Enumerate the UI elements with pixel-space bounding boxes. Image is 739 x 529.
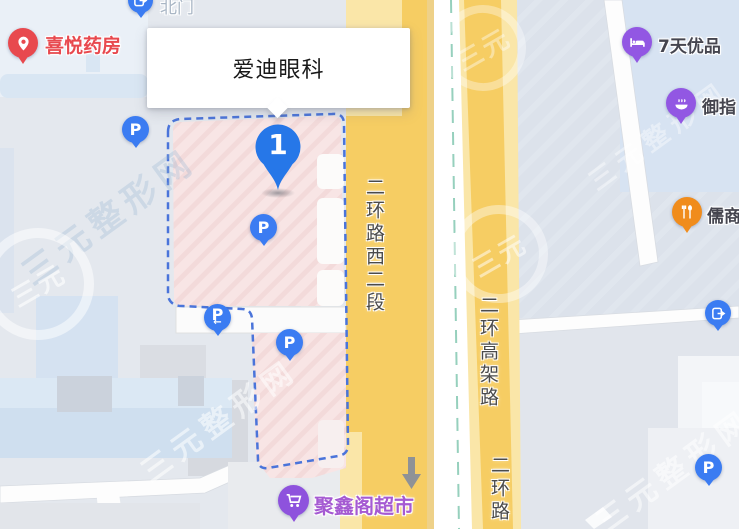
parking-entrance-icon: P ← <box>204 304 231 331</box>
poi-label-restaurant[interactable]: 儒商 <box>707 202 739 227</box>
parking-pin-2[interactable]: P <box>250 214 277 241</box>
popup-title: 爱迪眼科 <box>232 52 324 84</box>
parking-icon: P <box>122 116 149 143</box>
poi-label-foot-massage[interactable]: 御指 <box>702 93 736 118</box>
marker-number: 1 <box>255 131 301 159</box>
shopping-cart-icon <box>278 485 309 516</box>
parking-icon: P <box>276 329 303 356</box>
road-label-erhuanlu: 二环路 <box>486 455 513 524</box>
poi-pin-restaurant[interactable] <box>672 197 702 227</box>
map-canvas: 三元整形网 三元整形网 三元整形网 三元整形网 三元 三元 三元 二环路西二段 … <box>0 0 739 529</box>
place-popup[interactable]: 爱迪眼科 <box>147 28 410 108</box>
parking-icon: P <box>250 214 277 241</box>
poi-label-supermarket[interactable]: 聚鑫阁超市 <box>314 490 414 519</box>
road-label-erhuanlu-xierduan: 二环路西二段 <box>361 177 388 315</box>
parking-pin-4[interactable]: P <box>695 454 722 481</box>
poi-label-north-gate[interactable]: 北门 <box>160 0 194 18</box>
parking-icon: P <box>695 454 722 481</box>
parking-pin-1[interactable]: P <box>122 116 149 143</box>
road-label-erhuan-gaojialu: 二环高架路 <box>475 295 502 410</box>
poi-pin-pharmacy[interactable] <box>8 28 38 58</box>
fork-spoon-icon <box>672 197 702 227</box>
map-pin-icon <box>8 28 38 58</box>
parking-entrance-pin[interactable]: P ← <box>204 304 231 331</box>
result-marker-1[interactable]: 1 <box>255 124 301 194</box>
gate-pin-east[interactable] <box>705 300 731 326</box>
parking-pin-3[interactable]: P <box>276 329 303 356</box>
poi-label-hotel[interactable]: 7天优品 <box>658 32 721 57</box>
poi-pin-north-gate[interactable] <box>128 0 153 13</box>
spa-bowl-icon <box>666 88 696 118</box>
poi-pin-supermarket[interactable] <box>278 485 309 516</box>
poi-label-pharmacy[interactable]: 喜悦药房 <box>45 31 121 58</box>
bed-icon <box>622 27 652 57</box>
poi-pin-hotel[interactable] <box>622 27 652 57</box>
poi-pin-foot-massage[interactable] <box>666 88 696 118</box>
